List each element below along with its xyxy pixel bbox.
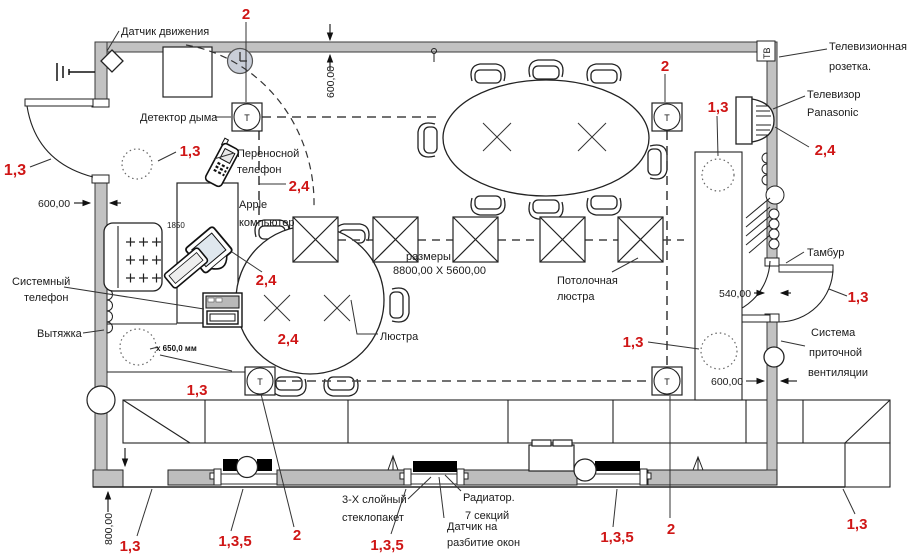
smoke-detector-box: Т (232, 103, 262, 131)
conference-table-group (418, 60, 667, 219)
callout-inner-top-left: 1,3 (180, 143, 201, 160)
portable-phone-label-2: телефон (237, 164, 281, 176)
entrance-door (25, 99, 109, 183)
callout-right-smoke: 2 (661, 58, 669, 75)
apple-label-1: Apple (239, 199, 267, 211)
tv-socket: ТВ (757, 41, 775, 61)
tv-label-1: Телевизор (807, 89, 861, 101)
supply-vent-label-1: Система (811, 327, 856, 339)
window-segment (463, 470, 577, 485)
left-wall-upper (95, 42, 107, 104)
right-wall-hatch (746, 198, 770, 253)
ground-symbol (57, 63, 95, 81)
exhaust-size-label: х 650,0 мм (156, 344, 197, 353)
window-sensor-label-1: Датчик на (447, 521, 498, 533)
vestibule-label: Тамбур (807, 247, 844, 259)
detector-letter: Т (664, 377, 670, 387)
room-size-label-1: размеры (406, 251, 451, 263)
door-leaf (25, 99, 93, 106)
callout-bottom-left: 1,3 (120, 538, 141, 554)
supply-vent-label-3: вентиляции (808, 367, 868, 379)
desk-dimension: 1850 (167, 221, 185, 230)
tv-label-2: Panasonic (807, 107, 859, 119)
callout-right-top: 1,3 (708, 99, 729, 116)
tv-socket-label-2: розетка. (829, 61, 871, 73)
radiator-label-1: Радиатор. (463, 492, 515, 504)
callout-top-smoke: 2 (242, 6, 250, 23)
tv-socket-label-1: Телевизионная (829, 41, 907, 53)
floor-plan: ТВ (0, 0, 907, 554)
door-swing-arc (27, 106, 93, 177)
portable-phone-label-1: Переносной (237, 148, 299, 160)
ceiling-chandelier-label-1: Потолочная (557, 275, 618, 287)
exhaust-grille (107, 289, 113, 333)
callout-round-table: 2,4 (278, 331, 300, 348)
motion-sensor-label: Датчик движения (121, 26, 209, 38)
system-phone-label-2: телефон (24, 292, 68, 304)
ceiling-lamp (540, 217, 585, 262)
smoke-detector-box: Т (652, 367, 682, 395)
right-wall-lower (767, 322, 777, 470)
wall-cabinet (163, 47, 212, 97)
callout-tv: 2,4 (815, 142, 837, 159)
callout-bottom-smoke-left: 2 (293, 527, 301, 544)
callout-bottom-left-area: 1,3 (187, 382, 208, 399)
callout-bottom-rad-2: 1,3,5 (600, 529, 633, 546)
callout-bottom-rad-1: 1,3,5 (218, 533, 251, 550)
callout-imac: 2,4 (256, 272, 278, 289)
left-wall-lower (95, 180, 107, 470)
couch (104, 223, 162, 291)
glazing-label-1: 3-Х слойный (342, 494, 407, 506)
glazing-label-2: стеклопакет (342, 512, 404, 524)
tv-socket-mark: ТВ (762, 47, 772, 59)
convector-unit (529, 440, 574, 471)
floor-plan-svg: ТВ (0, 0, 907, 554)
bottom-windows (93, 440, 845, 487)
callout-phone: 2,4 (289, 178, 311, 195)
window-sensor-label-2: разбитие окон (447, 537, 520, 549)
ceiling-lamp (293, 217, 338, 262)
window-segment (648, 470, 777, 485)
callout-bottom-smoke-right: 2 (667, 521, 675, 538)
callout-far-left-door: 1,3 (4, 162, 26, 179)
door-leaf (779, 265, 833, 272)
smoke-detector-label: Детектор дыма (140, 112, 218, 124)
room-size-label-2: 8800,00 X 5600,00 (393, 265, 486, 277)
ceiling-lamp (618, 217, 663, 262)
detector-letter: Т (257, 377, 263, 387)
ceiling-chandelier-label-2: люстра (557, 291, 595, 303)
system-phone-device (203, 293, 242, 327)
callout-bottom-glazing: 1,3,5 (370, 537, 403, 554)
window-segment (168, 470, 215, 485)
window-vent-circle (574, 459, 596, 481)
window-segment (277, 470, 407, 485)
smoke-detector-box: Т (245, 367, 275, 395)
dim-door-width: 540,00 (719, 288, 751, 300)
callout-right-vent: 1,3 (623, 334, 644, 351)
conference-table (443, 80, 649, 196)
dim-vent-offset: 600,00 (711, 376, 743, 388)
dim-top-offset: 600,00 (325, 66, 337, 98)
exhaust-label: Вытяжка (37, 328, 83, 340)
window-vent-circle (237, 457, 258, 478)
apple-label-2: компьютер (239, 217, 294, 229)
dim-left-wall: 600,00 (38, 198, 70, 210)
supply-vent-unit (764, 347, 784, 367)
detector-letter: Т (244, 113, 250, 123)
detector-letter: Т (664, 113, 670, 123)
right-cabinet (695, 152, 742, 400)
supply-vent-label-2: приточной (809, 347, 862, 359)
portable-phone (203, 138, 241, 188)
smoke-detector-box: Т (652, 103, 682, 131)
chandelier-label: Люстра (380, 331, 419, 343)
ceiling-lamp (453, 217, 498, 262)
system-phone-label-1: Системный (12, 276, 70, 288)
left-wall-vent (87, 386, 115, 414)
callout-bottom-right: 1,3 (847, 516, 868, 533)
callout-right-door: 1,3 (848, 289, 869, 306)
dim-sill-height: 800,00 (103, 513, 115, 545)
